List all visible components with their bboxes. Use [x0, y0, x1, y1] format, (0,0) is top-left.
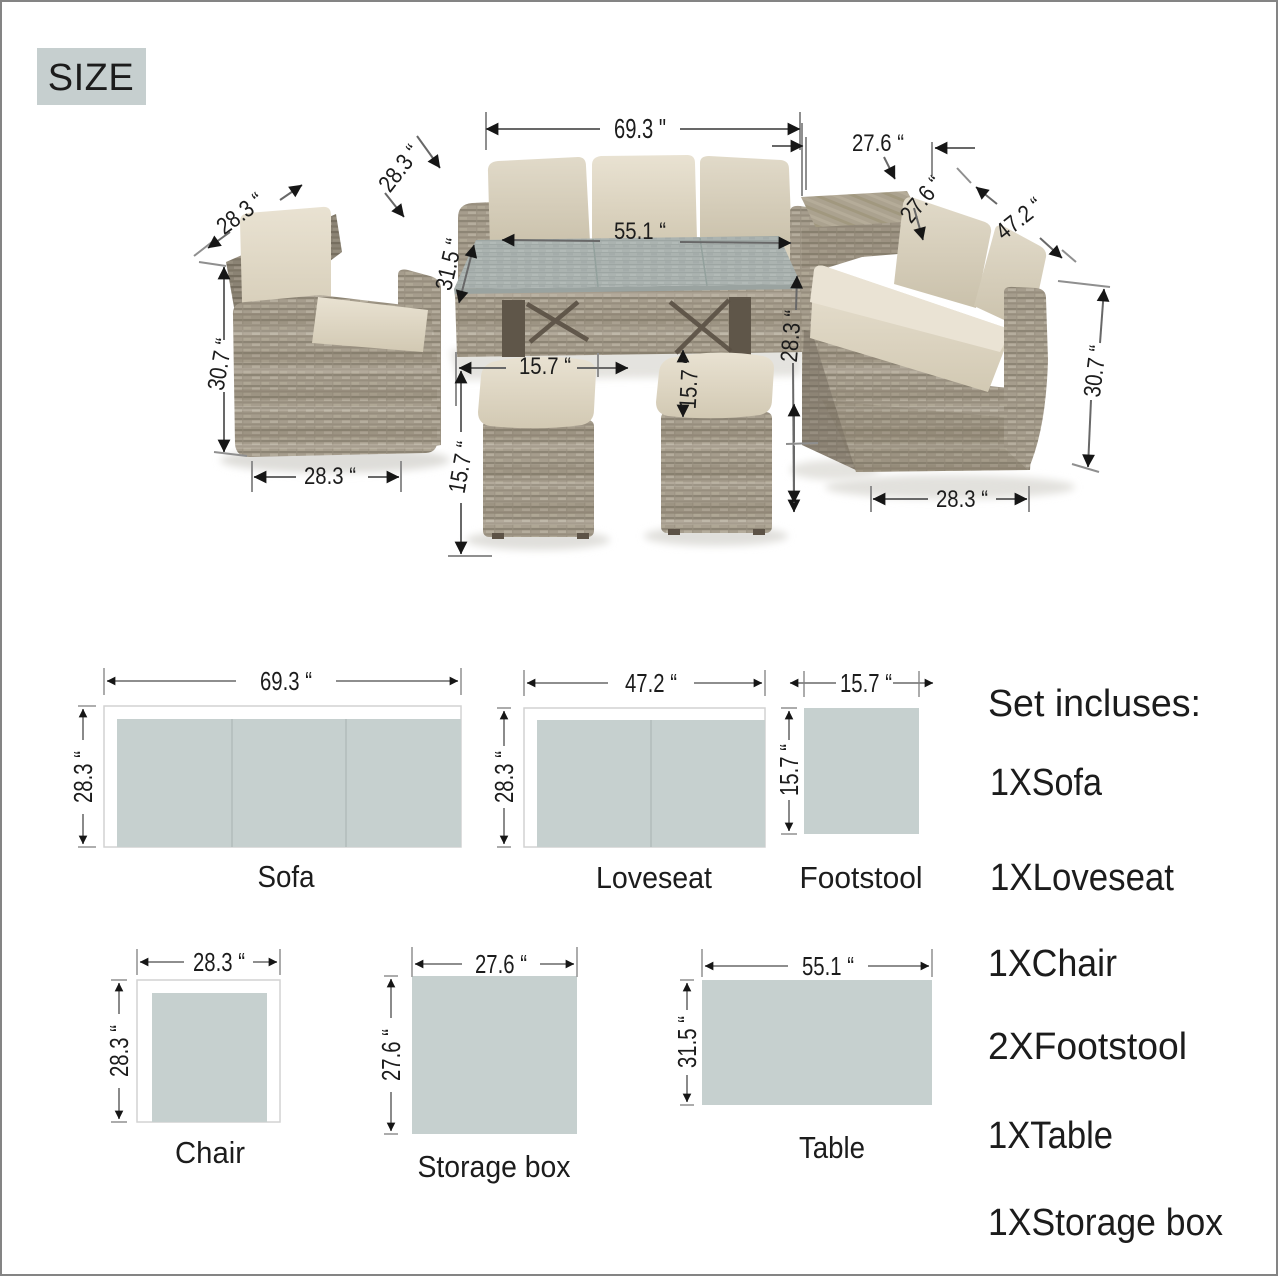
svg-text:15.7 “: 15.7 “ [840, 668, 892, 698]
svg-text:28.3 “: 28.3 “ [104, 1025, 134, 1077]
svg-text:27.6 “: 27.6 “ [475, 949, 527, 979]
svg-text:Sofa: Sofa [258, 859, 316, 894]
svg-text:1XTable: 1XTable [988, 1115, 1113, 1157]
svg-text:SIZE: SIZE [48, 57, 134, 99]
svg-text:Footstool: Footstool [800, 860, 923, 895]
svg-text:27.6 “: 27.6 “ [852, 130, 904, 157]
svg-text:15.7 “: 15.7 “ [675, 356, 705, 409]
svg-text:47.2 “: 47.2 “ [625, 668, 677, 698]
svg-text:31.5 “: 31.5 “ [672, 1016, 702, 1068]
svg-text:Loveseat: Loveseat [596, 860, 712, 895]
svg-text:15.7 “: 15.7 “ [519, 353, 571, 380]
svg-text:69.3 “: 69.3 “ [260, 666, 312, 696]
svg-text:Set incluses:: Set incluses: [988, 683, 1201, 725]
svg-text:1XLoveseat: 1XLoveseat [990, 857, 1174, 899]
svg-text:28.3 “: 28.3 “ [936, 486, 988, 513]
svg-text:1XStorage box: 1XStorage box [988, 1202, 1223, 1244]
svg-text:28.3 “: 28.3 “ [489, 751, 519, 803]
svg-text:15.7 “: 15.7 “ [774, 744, 804, 796]
svg-text:55.1 “: 55.1 “ [614, 218, 666, 245]
svg-text:Storage box: Storage box [418, 1149, 571, 1184]
svg-text:69.3 ": 69.3 " [614, 113, 666, 144]
svg-text:28.3 “: 28.3 “ [193, 947, 245, 977]
svg-text:2XFootstool: 2XFootstool [988, 1026, 1187, 1068]
svg-text:Table: Table [799, 1130, 865, 1165]
svg-text:27.6 “: 27.6 “ [376, 1029, 406, 1081]
svg-text:1XSofa: 1XSofa [990, 762, 1103, 804]
svg-text:28.3 “: 28.3 “ [304, 463, 356, 490]
svg-text:55.1 “: 55.1 “ [802, 951, 854, 981]
svg-text:28.3 “: 28.3 “ [776, 309, 807, 363]
svg-text:Chair: Chair [175, 1135, 245, 1170]
svg-text:1XChair: 1XChair [988, 943, 1117, 985]
svg-text:28.3 “: 28.3 “ [68, 751, 98, 803]
